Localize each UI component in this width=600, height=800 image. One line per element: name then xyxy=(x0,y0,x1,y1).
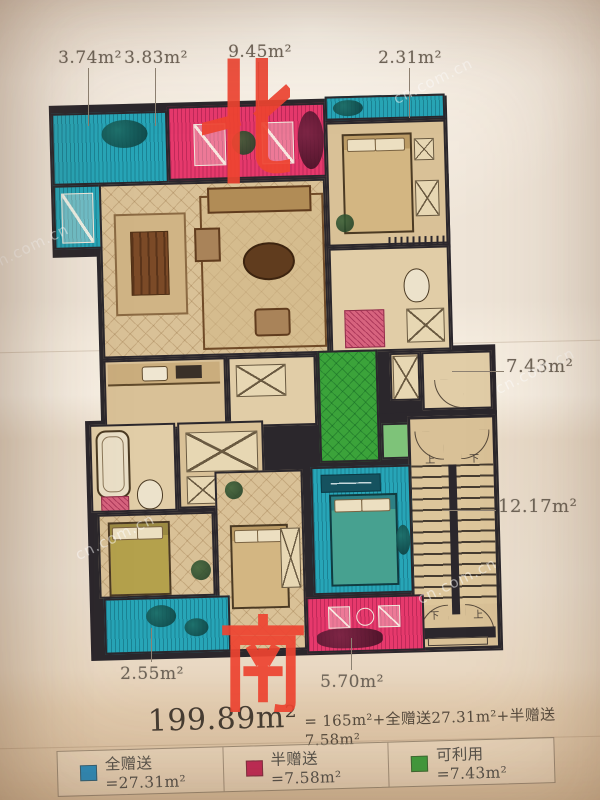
plant-icon xyxy=(184,618,208,637)
balcony-south-pink xyxy=(306,594,425,653)
armchair-icon xyxy=(194,227,221,262)
wardrobe-icon xyxy=(280,527,302,588)
plant-icon xyxy=(101,119,148,148)
room-name-tag xyxy=(321,473,381,493)
legend-label: 半赠送=7.58m² xyxy=(270,745,389,788)
floorplan-photo: { "poster": { "compass": { "north": "北",… xyxy=(0,0,600,800)
room-living-dining xyxy=(99,179,329,359)
dining-table-icon xyxy=(130,231,170,296)
pillow-icon xyxy=(375,138,405,152)
plant-icon xyxy=(191,560,212,581)
pillow-icon xyxy=(257,529,282,543)
leader-line xyxy=(155,68,156,126)
room-bedroom-southwest xyxy=(97,512,215,599)
leader-line xyxy=(88,68,89,126)
leader-line xyxy=(452,371,504,372)
north-glyph-strokes xyxy=(206,61,287,177)
plant-icon xyxy=(225,481,243,499)
room-bedroom-giveaway-teal xyxy=(310,465,413,596)
plant-icon xyxy=(317,627,384,649)
pillow-icon xyxy=(361,498,390,512)
area-label-top-left-1: 3.74m² xyxy=(52,48,128,68)
legend-swatch-crimson xyxy=(245,760,262,776)
plant-icon xyxy=(297,111,325,170)
bed-icon xyxy=(108,521,172,597)
dining-set-icon xyxy=(114,212,189,316)
stove-icon xyxy=(176,365,202,379)
area-label-right-upper: 7.43m² xyxy=(506,356,573,377)
sink-icon xyxy=(142,366,168,382)
leader-line xyxy=(351,638,352,670)
balcony-west-column xyxy=(53,185,103,250)
plant-icon xyxy=(146,605,177,628)
area-label-top-right: 2.31m² xyxy=(368,48,452,68)
room-bathroom-west xyxy=(89,423,177,513)
ac-platform-icon xyxy=(61,193,94,244)
pillow-icon xyxy=(137,526,164,540)
room-usable-green xyxy=(317,349,380,463)
stair-down-label: 下 xyxy=(469,450,479,465)
plant-icon xyxy=(333,100,363,117)
balcony-south-west xyxy=(104,595,231,654)
bath-mat-icon xyxy=(101,496,129,512)
leader-line xyxy=(409,68,410,118)
legend-swatch-green xyxy=(411,756,428,772)
pillow-icon xyxy=(346,138,376,152)
hallway-upper xyxy=(227,355,317,427)
wardrobe-icon xyxy=(185,431,258,473)
plant-icon xyxy=(396,525,411,555)
legend-label: 全赠送=27.31m² xyxy=(105,749,224,792)
armchair-icon xyxy=(254,308,291,337)
bed-icon xyxy=(329,493,399,587)
legend-item-full-giveaway: 全赠送=27.31m² xyxy=(57,747,224,796)
leader-line xyxy=(444,510,496,511)
pillow-icon xyxy=(112,527,139,541)
toilet-icon xyxy=(137,479,164,510)
area-label-bottom-mid: 5.70m² xyxy=(312,672,392,692)
bathtub-icon xyxy=(95,430,131,499)
shaft-x-icon xyxy=(392,355,419,400)
pillow-icon xyxy=(234,530,259,544)
south-glyph-strokes xyxy=(227,616,299,711)
balcony-north-west xyxy=(51,111,169,186)
shaft xyxy=(389,352,420,401)
dresser-icon xyxy=(415,180,440,217)
area-label-bottom-left: 2.55m² xyxy=(112,664,192,684)
compass-north xyxy=(202,58,290,184)
stair-up-label: 上 xyxy=(473,606,483,621)
legend-item-usable: 可利用=7.43m² xyxy=(389,738,555,787)
entry-step-icon xyxy=(428,637,488,647)
legend-item-half-giveaway: 半赠送=7.58m² xyxy=(223,743,390,792)
legend-label: 可利用=7.43m² xyxy=(436,740,555,783)
stool-icon xyxy=(328,606,351,629)
stair-down-label: 下 xyxy=(429,607,439,622)
stool-icon xyxy=(378,605,401,628)
cabinet-icon xyxy=(236,364,287,397)
shower-icon xyxy=(344,309,385,348)
room-bedroom-northeast xyxy=(325,120,448,247)
vanity-icon xyxy=(406,308,445,343)
stair-up-label: 上 xyxy=(425,451,435,466)
toilet-icon xyxy=(403,268,430,303)
leader-line xyxy=(151,628,152,662)
compass-south xyxy=(222,614,304,712)
pillow-icon xyxy=(334,499,363,513)
balcony-north-east xyxy=(325,94,446,121)
door-arc-icon xyxy=(434,379,464,409)
room-bathroom-east xyxy=(329,245,452,352)
landing-upper xyxy=(421,350,492,410)
room-kitchen xyxy=(103,357,227,430)
legend-swatch-teal xyxy=(80,765,97,781)
area-label-right-lower: 12.17m² xyxy=(498,496,577,517)
sofa-icon xyxy=(207,185,312,214)
table-icon xyxy=(356,608,374,626)
nightstand-icon xyxy=(414,138,435,161)
area-label-top-left-2: 3.83m² xyxy=(118,48,194,68)
